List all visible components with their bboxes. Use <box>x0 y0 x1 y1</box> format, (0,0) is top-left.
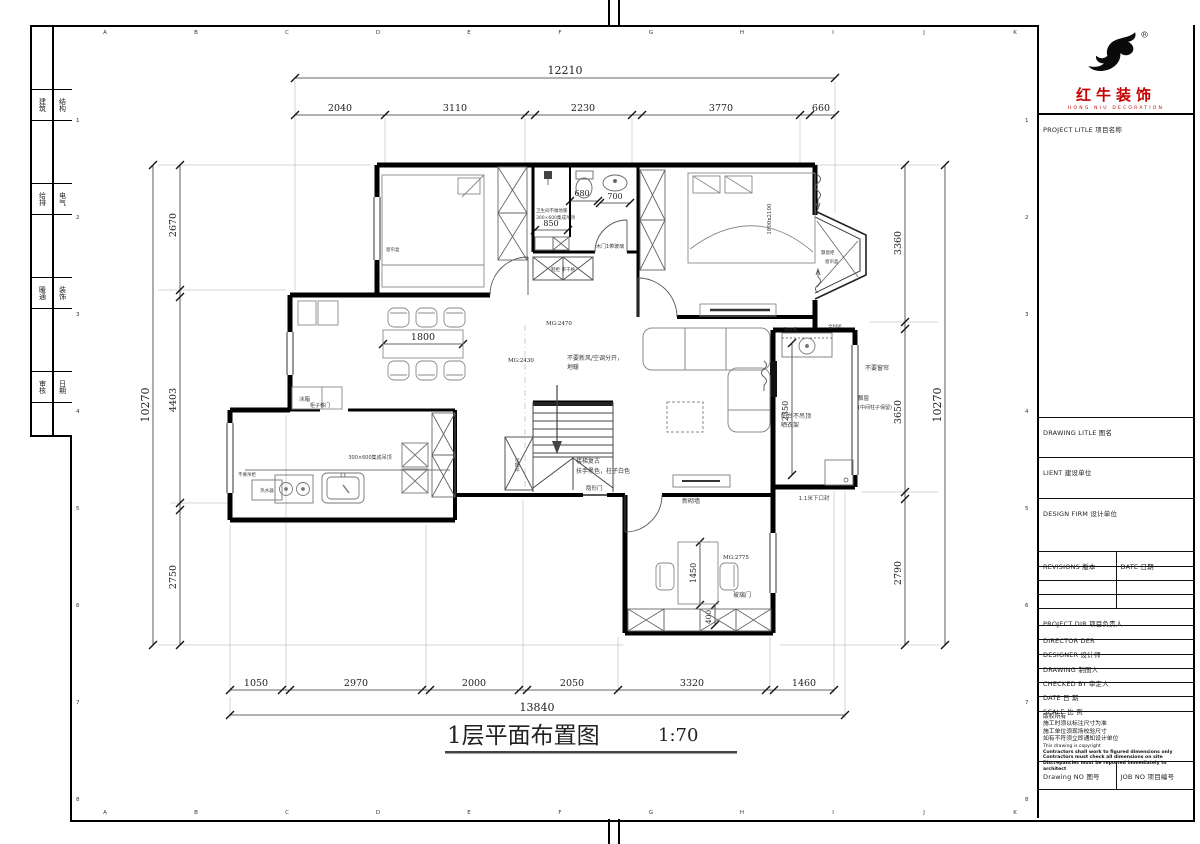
date-cell: DATE 日 期 <box>1039 683 1193 697</box>
balcony-door-panel <box>770 361 777 397</box>
grid-number: 5 <box>1025 506 1029 512</box>
dimension-ticks <box>149 74 949 719</box>
fold-mark <box>618 819 620 844</box>
master-door <box>638 278 677 317</box>
revision-row <box>1039 581 1193 595</box>
dim: 1460 <box>792 678 816 689</box>
revision-row <box>1039 595 1193 609</box>
label-new-wall: 新砌墙 <box>682 497 700 505</box>
label-balcony2: 晒衣架 <box>781 421 799 429</box>
grid-letter: C <box>285 810 289 816</box>
scale-cell: SCALE 比 例 <box>1039 697 1193 712</box>
balcony-fixtures <box>782 333 853 485</box>
director-cell: DIRECTOR DER <box>1039 626 1193 640</box>
grid-letter: C <box>285 30 289 36</box>
dim: 3650 <box>893 400 904 424</box>
grid-number: 8 <box>1025 797 1029 803</box>
stove-icon <box>275 475 313 503</box>
label-balcony1: 阳台不吊顶 <box>781 412 811 420</box>
note-line: 施工时须以标注尺寸为准 <box>1043 721 1189 728</box>
dim-right-total: 10270 <box>931 388 944 423</box>
label-bath-note1: 卫生间不做地暖 <box>536 207 568 214</box>
dim: 4403 <box>168 388 179 412</box>
sink-icon <box>603 175 627 191</box>
strip-label: 装饰 <box>52 278 72 308</box>
strip-label: 电气 <box>52 184 72 214</box>
dining-furniture <box>292 301 465 409</box>
grid-number: 6 <box>76 603 80 609</box>
label-bay1: 飘窗 <box>858 394 870 402</box>
tv-cabinet <box>673 475 730 487</box>
label-mg-hall: MG:2470 <box>546 321 572 327</box>
dim: 2050 <box>560 678 584 689</box>
dim: 2790 <box>893 561 904 585</box>
label-enclosed: 全封闭 <box>828 323 842 330</box>
grid-number: 6 <box>1025 603 1029 609</box>
tv-cabinet <box>700 304 776 316</box>
client-cell: LIENT 建设单位 <box>1039 458 1193 499</box>
grid-letter: I <box>832 810 834 816</box>
project-title-label: PROJECT LITLE 项目名称 <box>1043 126 1122 134</box>
label-stair2: 扶手黑色，柱子白色 <box>576 467 630 475</box>
bedroom1-furniture <box>382 167 527 287</box>
grid-number: 2 <box>1025 215 1029 221</box>
dim: 700 <box>607 192 622 201</box>
fold-mark <box>618 0 620 25</box>
project-dir-cell: PROJECT DIR 项目负责人 <box>1039 609 1193 626</box>
dim: 2040 <box>328 103 352 114</box>
grid-letter: E <box>467 30 471 36</box>
grid-letter: D <box>376 30 380 36</box>
doors <box>490 220 677 532</box>
dim: 2670 <box>168 213 179 237</box>
label-washer: 洗衣机 <box>784 326 798 333</box>
brand-name-en: HONG NIU DECORATION <box>1043 106 1189 111</box>
label-kitchen-ceiling: 300×600集成吊顶 <box>348 454 391 461</box>
bedroom-door <box>490 257 528 295</box>
label-glass-door: 玻璃门 <box>733 591 751 599</box>
grid-number: 1 <box>76 118 80 124</box>
dim: 2000 <box>462 678 486 689</box>
label-no-curtain: 不要窗帘 <box>865 364 889 372</box>
grid-letter: I <box>832 30 834 36</box>
dim-bottom-total: 13840 <box>520 701 555 714</box>
grid-letter: B <box>194 30 198 36</box>
grid-letter: G <box>649 810 653 816</box>
grid-letters: A B C D E F G H I J K A B C D E F G H I … <box>103 30 1017 816</box>
grid-letter: D <box>376 810 380 816</box>
label-mg-study: MG:2775 <box>723 555 749 561</box>
label-no-upper: 不要吊柜 <box>238 471 256 478</box>
wardrobe <box>498 167 527 260</box>
sink-icon <box>322 473 364 503</box>
label-hvac2: 地暖 <box>567 363 579 371</box>
label-cab-door: 柜子移门 <box>310 402 330 409</box>
signature-strip: 建筑结构 给排电气 暖通装饰 审核日期 <box>30 25 72 437</box>
strip-label: 暖通 <box>32 278 52 308</box>
grid-number: 2 <box>76 215 80 221</box>
grid-letter: K <box>1013 30 1017 36</box>
fold-mark <box>608 819 610 844</box>
label-curtain-box: 窗帘盒 <box>386 246 400 253</box>
dimension-texts: 12210 2040 3110 2230 3770 660 10270 2670… <box>139 64 944 714</box>
registered-mark: ® <box>1140 30 1149 40</box>
grid-letter: J <box>922 30 925 36</box>
dim: 1050 <box>244 678 268 689</box>
checked-by-cell: CHECKED BY 审定人 <box>1039 669 1193 683</box>
study-cabinets <box>628 609 771 631</box>
grid-number: 8 <box>76 797 80 803</box>
study-furniture <box>628 542 771 631</box>
plan-title: 1层平面布置图 <box>447 723 600 749</box>
drawing-title: 1层平面布置图 1:70 <box>445 723 737 754</box>
dim-left-total: 10270 <box>139 388 152 423</box>
label-seal: 1.1米下口封 <box>799 494 830 502</box>
walls <box>230 165 855 633</box>
grid-number: 5 <box>76 506 80 512</box>
grid-letter: F <box>558 30 561 36</box>
design-firm-cell: DESIGN FIRM 设计单位 <box>1039 499 1193 552</box>
label-fridge: 冰箱 <box>299 395 311 403</box>
sofa <box>643 328 770 370</box>
grid-letter: A <box>103 810 107 816</box>
master-furniture <box>640 170 815 316</box>
strip-label: 结构 <box>52 90 72 120</box>
label-closet: 衣帽间 <box>514 458 521 472</box>
label-bay-curtain: 窗帘盒 <box>825 258 839 265</box>
label-mg-living: MG:2430 <box>508 358 534 364</box>
dim: 1450 <box>689 563 698 583</box>
strip-label: 给排 <box>32 184 52 214</box>
wardrobe <box>640 170 665 270</box>
grid-number: 4 <box>76 409 80 415</box>
number-cells: Drawing NO 图号 JOB NO 项目编号 <box>1039 762 1193 790</box>
strip-label: 日期 <box>52 372 72 402</box>
study-door <box>625 495 662 532</box>
label-hidden-door: 隐形门 <box>586 484 603 492</box>
label-hvac1: 不要新风/空调分开， <box>567 354 623 362</box>
bull-logo-icon: ® <box>1081 27 1151 79</box>
grid-number: 3 <box>1025 312 1029 318</box>
grid-letter: B <box>194 810 198 816</box>
logo-cell: ® 红牛装饰 HONG NIU DECORATION <box>1039 25 1193 115</box>
grid-number: 7 <box>76 700 80 706</box>
label-shoe-cabinet: 鞋柜 带千格 <box>551 266 575 273</box>
notes-cell: 版权所有 施工时须以标注尺寸为准 施工单位须现场校验尺寸 如有不符须立即通知设计… <box>1039 712 1193 762</box>
grid-number: 3 <box>76 312 80 318</box>
shower-head-icon <box>544 171 552 179</box>
dim: 3360 <box>893 231 904 255</box>
label-bath-note2: 300×600集成吊顶 <box>536 214 575 221</box>
floor-plan: A B C D E F G H I J K A B C D E F G H I … <box>70 25 1035 818</box>
dim: 3110 <box>443 103 467 114</box>
project-title-cell: PROJECT LITLE 项目名称 <box>1039 115 1193 418</box>
label-stair1: 楼梯复古 <box>576 457 600 465</box>
label-bay2: (中间柱子保留) <box>858 404 892 411</box>
strip-label: 建筑 <box>32 90 52 120</box>
grid-number: 1 <box>1025 118 1029 124</box>
living-furniture <box>643 328 770 487</box>
revisions-header: REVISIONS 版本 DATE 日期 <box>1039 552 1193 567</box>
fold-mark <box>608 0 610 25</box>
label-bay-seat: 飘窗柜 <box>821 249 835 256</box>
grid-letter: H <box>740 810 744 816</box>
dim: 2750 <box>168 565 179 589</box>
dim: 660 <box>812 103 830 114</box>
grid-number: 4 <box>1025 409 1029 415</box>
drawing-by-cell: DRAWING 制图人 <box>1039 655 1193 669</box>
grid-letter: A <box>103 30 107 36</box>
date-col-label: DATE 日期 <box>1121 563 1154 571</box>
client-label: LIENT 建设单位 <box>1043 469 1092 477</box>
grid-letter: K <box>1013 810 1017 816</box>
drawing-no-label: Drawing NO 图号 <box>1043 773 1100 781</box>
plan-scale: 1:70 <box>658 725 698 746</box>
grid-number: 7 <box>1025 700 1029 706</box>
coffee-table <box>667 402 703 432</box>
revisions-label: REVISIONS 版本 <box>1043 563 1096 571</box>
grid-letter: H <box>740 30 744 36</box>
bed-size-label: 1800x2100 <box>767 203 773 235</box>
stair-down-arrow <box>552 441 562 454</box>
dim: 2970 <box>344 678 368 689</box>
design-firm-label: DESIGN FIRM 设计单位 <box>1043 510 1117 518</box>
master-bed <box>688 173 815 263</box>
strip-label: 审核 <box>32 372 52 402</box>
tall-cabinet <box>432 413 455 497</box>
dim: 1800 <box>411 332 435 343</box>
grid-letter: E <box>467 810 471 816</box>
grid-letter: F <box>558 810 561 816</box>
grid-letter: J <box>922 810 925 816</box>
drawing-title-label: DRAWING LITLE 图名 <box>1043 429 1112 437</box>
job-no-label: JOB NO 项目编号 <box>1121 773 1175 781</box>
title-underline <box>445 751 737 754</box>
dim: 3320 <box>680 678 704 689</box>
brand-name: 红牛装饰 <box>1043 84 1189 105</box>
label-bath-door: 木门1带玻璃 <box>596 243 624 250</box>
drawing-sheet: 建筑结构 给排电气 暖通装饰 审核日期 A B C D E F G H I J … <box>0 0 1200 844</box>
title-block: ® 红牛装饰 HONG NIU DECORATION PROJECT LITLE… <box>1037 25 1193 818</box>
grid-letter: G <box>649 30 653 36</box>
note-line: 如有不符须立即通知设计单位 <box>1043 736 1189 743</box>
dim: 3770 <box>709 103 733 114</box>
dim-top-total: 12210 <box>548 64 583 77</box>
designer-cell: DESIGNER 设计师 <box>1039 640 1193 655</box>
desk <box>678 542 718 604</box>
dim: 2230 <box>571 103 595 114</box>
drawing-title-cell: DRAWING LITLE 图名 <box>1039 418 1193 458</box>
label-heater: 热水器 <box>260 487 274 494</box>
